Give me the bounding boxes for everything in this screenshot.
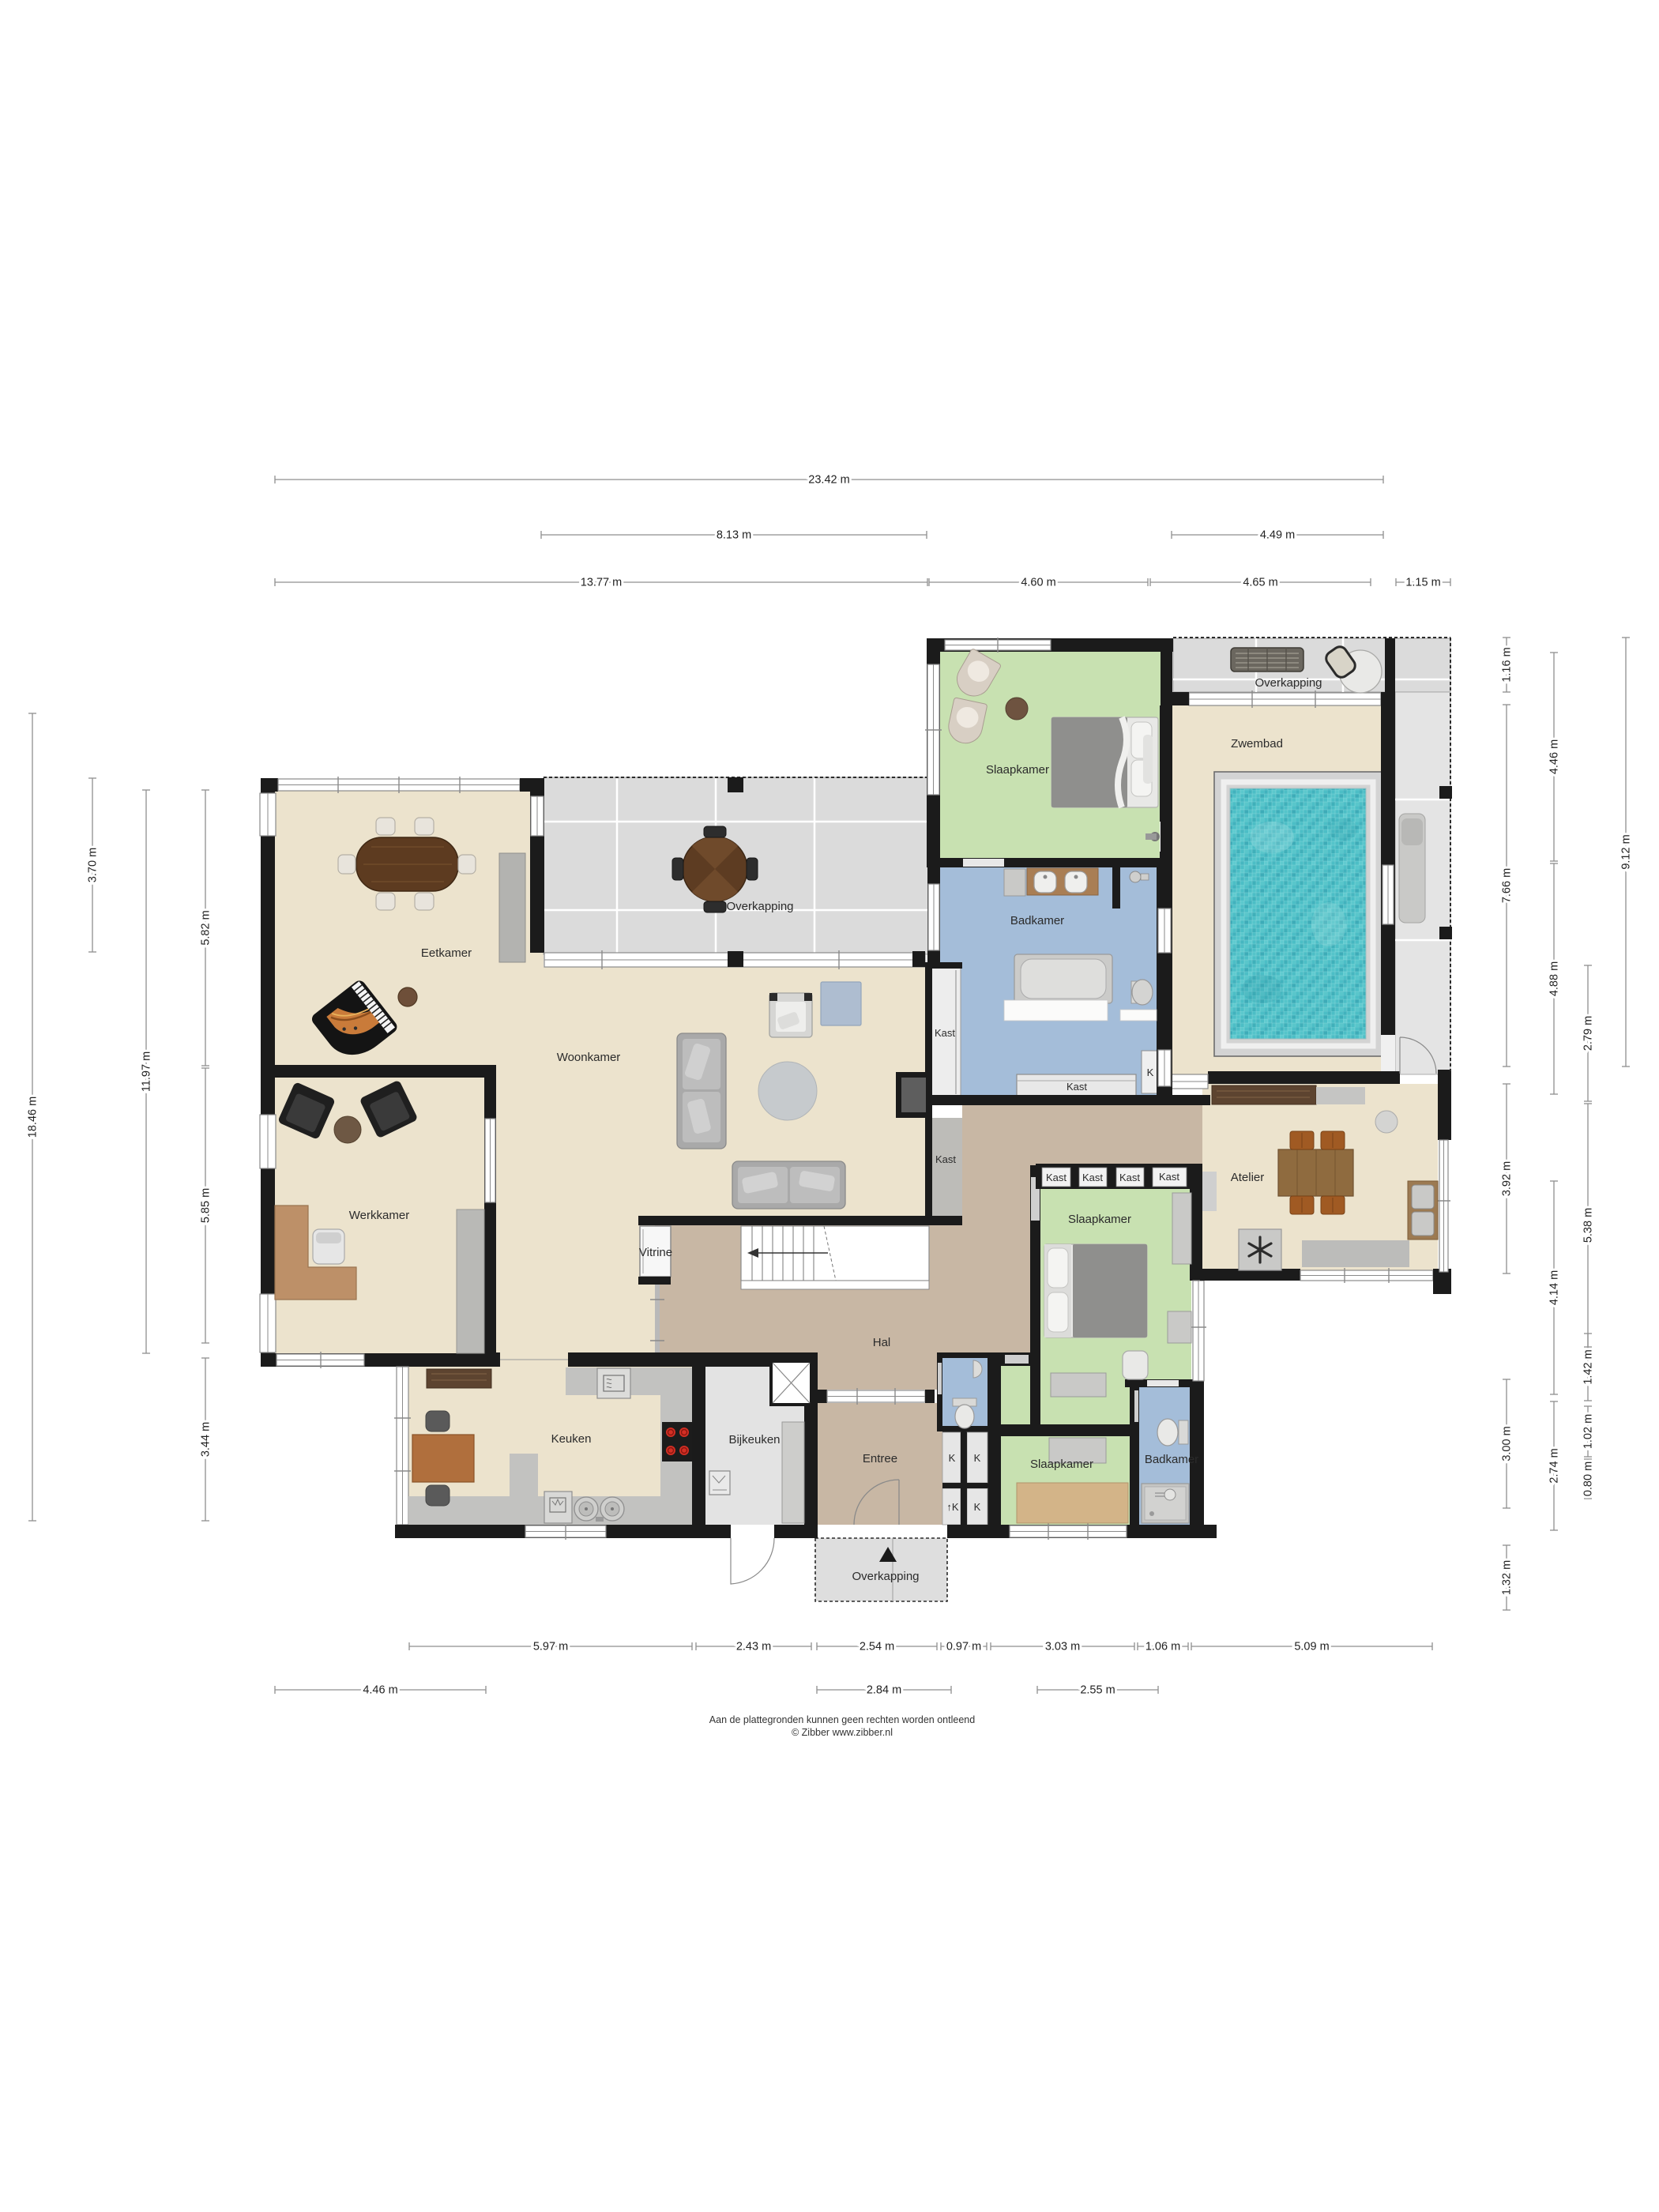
svg-text:1.06 m: 1.06 m [1145,1641,1180,1653]
svg-text:Kast: Kast [1066,1081,1087,1093]
svg-text:Vitrine: Vitrine [639,1246,672,1259]
svg-text:Badkamer: Badkamer [1010,914,1064,927]
svg-text:4.65 m: 4.65 m [1243,577,1277,589]
svg-text:18.46 m: 18.46 m [27,1097,39,1138]
svg-text:5.85 m: 5.85 m [200,1188,213,1223]
svg-text:Overkapping: Overkapping [1255,676,1322,690]
svg-text:Overkapping: Overkapping [852,1570,919,1583]
svg-text:2.84 m: 2.84 m [867,1684,901,1697]
svg-text:Kast: Kast [1082,1172,1103,1183]
svg-text:Keuken: Keuken [551,1432,592,1446]
svg-text:0.97 m: 0.97 m [946,1641,981,1653]
svg-text:K: K [974,1452,981,1464]
svg-text:2.79 m: 2.79 m [1582,1016,1595,1051]
svg-text:↑K: ↑K [946,1501,959,1513]
svg-text:13.77 m: 13.77 m [581,577,622,589]
svg-text:2.55 m: 2.55 m [1080,1684,1115,1697]
svg-text:Badkamer: Badkamer [1145,1453,1198,1466]
svg-text:Kast: Kast [1046,1172,1066,1183]
svg-text:Slaapkamer: Slaapkamer [986,763,1049,777]
svg-text:1.15 m: 1.15 m [1405,577,1440,589]
svg-text:Entree: Entree [863,1452,897,1465]
svg-text:Overkapping: Overkapping [726,900,793,913]
svg-text:4.46 m: 4.46 m [1548,739,1561,774]
svg-text:Zwembad: Zwembad [1231,737,1283,750]
svg-text:Kast: Kast [1159,1171,1179,1183]
svg-text:9.12 m: 9.12 m [1620,834,1633,869]
svg-text:2.54 m: 2.54 m [860,1641,894,1653]
svg-text:7.66 m: 7.66 m [1501,868,1514,903]
svg-text:1.42 m: 1.42 m [1582,1349,1595,1384]
svg-text:5.97 m: 5.97 m [533,1641,568,1653]
svg-text:Eetkamer: Eetkamer [421,946,472,960]
svg-text:3.00 m: 3.00 m [1501,1426,1514,1461]
svg-text:23.42 m: 23.42 m [808,474,849,487]
svg-text:4.46 m: 4.46 m [363,1684,397,1697]
svg-text:Kast: Kast [1119,1172,1140,1183]
svg-text:3.70 m: 3.70 m [87,848,100,882]
svg-text:Slaapkamer: Slaapkamer [1030,1458,1093,1471]
svg-text:Kast: Kast [935,1027,955,1039]
svg-text:2.74 m: 2.74 m [1548,1448,1561,1483]
svg-text:4.49 m: 4.49 m [1260,529,1295,542]
svg-text:Bijkeuken: Bijkeuken [728,1433,780,1446]
svg-text:Woonkamer: Woonkamer [557,1051,621,1064]
svg-text:Hal: Hal [873,1336,891,1349]
svg-text:1.02 m: 1.02 m [1582,1414,1595,1449]
svg-text:8.13 m: 8.13 m [717,529,751,542]
svg-text:11.97 m: 11.97 m [141,1051,153,1092]
svg-text:3.44 m: 3.44 m [200,1422,213,1457]
svg-text:2.43 m: 2.43 m [736,1641,771,1653]
svg-text:Kast: Kast [935,1153,956,1165]
svg-text:5.82 m: 5.82 m [200,910,213,945]
svg-text:4.14 m: 4.14 m [1548,1270,1561,1305]
svg-text:3.92 m: 3.92 m [1501,1161,1514,1196]
svg-text:Atelier: Atelier [1231,1171,1265,1184]
svg-text:5.38 m: 5.38 m [1582,1208,1595,1243]
svg-text:1.16 m: 1.16 m [1501,647,1514,682]
svg-text:Werkkamer: Werkkamer [349,1209,409,1222]
svg-text:K: K [1147,1066,1154,1078]
svg-text:5.09 m: 5.09 m [1294,1641,1329,1653]
svg-text:0.80 m: 0.80 m [1582,1461,1595,1496]
svg-text:3.03 m: 3.03 m [1045,1641,1080,1653]
svg-text:1.32 m: 1.32 m [1501,1560,1514,1595]
svg-text:Aan de plattegronden kunnen ge: Aan de plattegronden kunnen geen rechten… [709,1714,975,1725]
svg-text:4.88 m: 4.88 m [1548,961,1561,996]
svg-text:© Zibber www.zibber.nl: © Zibber www.zibber.nl [792,1727,893,1738]
svg-text:K: K [949,1452,956,1464]
svg-text:Slaapkamer: Slaapkamer [1068,1213,1131,1226]
svg-text:K: K [974,1501,981,1513]
svg-text:4.60 m: 4.60 m [1021,577,1055,589]
